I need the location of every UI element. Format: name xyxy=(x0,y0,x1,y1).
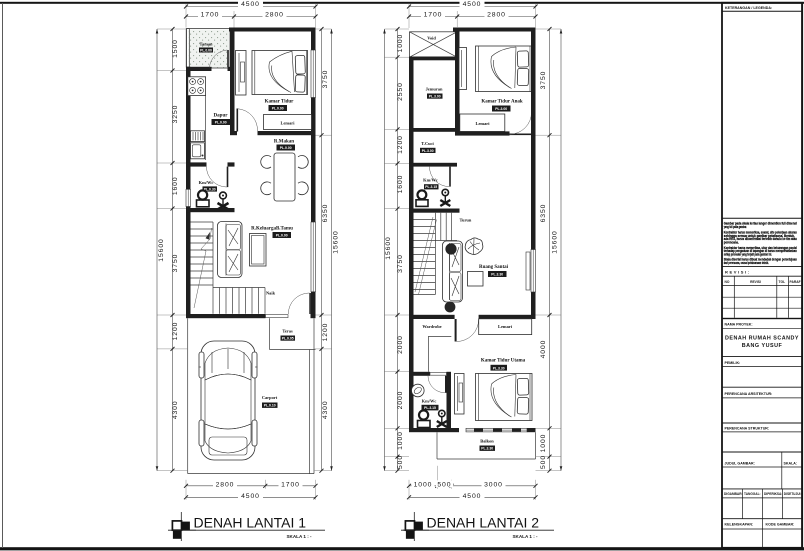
svg-text:Teras: Teras xyxy=(282,329,293,334)
svg-text:PL.0.00: PL.0.00 xyxy=(280,146,292,150)
svg-text:R.Makan: R.Makan xyxy=(274,140,294,145)
svg-text:PL.0.00: PL.0.00 xyxy=(272,107,284,111)
svg-text:SKALA 1 : -: SKALA 1 : - xyxy=(512,534,538,539)
svg-text:15600: 15600 xyxy=(332,230,339,253)
svg-text:DIPERIKSA:: DIPERIKSA: xyxy=(764,492,782,496)
svg-text:15600: 15600 xyxy=(552,230,559,253)
svg-text:500: 500 xyxy=(540,455,547,469)
svg-text:PL.3.30: PL.3.30 xyxy=(491,273,503,277)
svg-text:PL.0.05: PL.0.05 xyxy=(282,337,294,341)
svg-text:KODE GAMBAR:: KODE GAMBAR: xyxy=(766,523,795,527)
svg-text:2000: 2000 xyxy=(397,335,404,354)
svg-text:2800: 2800 xyxy=(265,12,284,19)
svg-text:PL.0.00: PL.0.00 xyxy=(200,48,212,52)
svg-text:1000: 1000 xyxy=(414,482,433,489)
svg-text:DENAH LANTAI 2: DENAH LANTAI 2 xyxy=(427,515,540,531)
svg-text:NAMA PROYEK:: NAMA PROYEK: xyxy=(725,323,753,327)
svg-text:Taman: Taman xyxy=(199,42,213,47)
svg-text:R.KeluargaB.Tamu: R.KeluargaB.Tamu xyxy=(251,227,293,232)
svg-text:Km/Wc: Km/Wc xyxy=(422,399,437,404)
svg-text:2550: 2550 xyxy=(397,82,404,101)
svg-text:Wardrobe: Wardrobe xyxy=(422,324,441,329)
svg-text:15600: 15600 xyxy=(385,236,392,259)
svg-text:BANG YUSUF: BANG YUSUF xyxy=(742,343,783,349)
svg-text:Km/Wc: Km/Wc xyxy=(423,178,438,183)
svg-text:1600: 1600 xyxy=(397,175,404,194)
svg-text:Kamar Tidur Anak: Kamar Tidur Anak xyxy=(481,100,523,105)
svg-text:PL.3.30: PL.3.30 xyxy=(481,447,493,451)
svg-text:Lemari: Lemari xyxy=(476,121,491,126)
svg-text:PL.3.15: PL.3.15 xyxy=(424,406,436,410)
svg-text:Kamar Tidur Utama: Kamar Tidur Utama xyxy=(481,359,526,364)
svg-text:1500: 1500 xyxy=(172,39,179,58)
svg-text:SKALA 1 : -: SKALA 1 : - xyxy=(286,534,312,539)
svg-text:PL.3.00: PL.3.00 xyxy=(422,149,434,153)
svg-text:PERENCANA ARSITEKTUR:: PERENCANA ARSITEKTUR: xyxy=(725,392,773,396)
svg-text:1200: 1200 xyxy=(397,135,404,154)
svg-text:DENAH RUMAH SCANDY: DENAH RUMAH SCANDY xyxy=(725,335,799,341)
svg-text:dari perencana, seusai pelaksa: dari perencana, seusai pelaksanaan tekni… xyxy=(724,261,769,265)
svg-text:PL.3.00: PL.3.00 xyxy=(495,107,507,111)
svg-text:PL.0.00: PL.0.00 xyxy=(276,234,288,238)
svg-text:6350: 6350 xyxy=(322,204,329,223)
svg-text:Dapur: Dapur xyxy=(214,114,229,119)
svg-text:3000: 3000 xyxy=(484,482,503,489)
svg-text:PL.3.30: PL.3.30 xyxy=(493,366,505,370)
svg-text:3750: 3750 xyxy=(540,71,547,90)
svg-text:4500: 4500 xyxy=(241,493,260,500)
svg-text:500: 500 xyxy=(397,455,404,469)
svg-text:Ruang Santai: Ruang Santai xyxy=(479,265,509,270)
svg-text:setiap persoalan yang terjadi: setiap persoalan yang terjadi pada gamba… xyxy=(724,252,772,256)
svg-text:PL.0.10: PL.0.10 xyxy=(264,404,276,408)
svg-text:6350: 6350 xyxy=(540,204,547,223)
svg-text:1700: 1700 xyxy=(201,12,220,19)
svg-text:PARAF: PARAF xyxy=(790,280,801,284)
svg-text:PL.0.00: PL.0.00 xyxy=(215,121,227,125)
svg-text:1000: 1000 xyxy=(397,431,404,450)
svg-text:4500: 4500 xyxy=(463,493,482,500)
svg-text:PERENCANA STRUKTUR:: PERENCANA STRUKTUR: xyxy=(725,426,770,430)
svg-text:15600: 15600 xyxy=(158,238,165,261)
svg-text:4300: 4300 xyxy=(322,400,329,419)
svg-text:perencana.: perencana. xyxy=(724,241,739,245)
svg-text:TANGGAL:: TANGGAL: xyxy=(744,492,761,496)
svg-text:Naik: Naik xyxy=(266,291,276,296)
svg-text:4000: 4000 xyxy=(540,340,547,359)
svg-text:Lemari: Lemari xyxy=(498,324,513,329)
svg-text:T.Cuci: T.Cuci xyxy=(421,141,434,146)
svg-text:DIGAMBAR:: DIGAMBAR: xyxy=(724,492,743,496)
svg-text:REVISI: REVISI xyxy=(750,280,761,284)
svg-text:REVISI:: REVISI: xyxy=(725,270,751,275)
svg-text:DISETUJUI:: DISETUJUI: xyxy=(784,492,802,496)
svg-text:PEMILIK:: PEMILIK: xyxy=(725,361,741,365)
svg-text:3750: 3750 xyxy=(172,254,179,273)
svg-text:Km/Wc: Km/Wc xyxy=(199,180,214,185)
svg-text:1000: 1000 xyxy=(397,34,404,53)
svg-text:1200: 1200 xyxy=(322,323,329,342)
svg-text:Carport: Carport xyxy=(262,395,278,400)
svg-text:SKALA:: SKALA: xyxy=(784,462,798,466)
svg-text:2800: 2800 xyxy=(216,482,235,489)
svg-text:PL.3.15: PL.3.15 xyxy=(425,185,437,189)
svg-text:1000: 1000 xyxy=(540,434,547,453)
svg-text:3250: 3250 xyxy=(172,105,179,124)
svg-text:JUDUL GAMBAR:: JUDUL GAMBAR: xyxy=(725,462,755,466)
svg-text:1700: 1700 xyxy=(281,482,300,489)
svg-text:Turun: Turun xyxy=(460,218,472,223)
svg-text:4500: 4500 xyxy=(463,1,482,8)
svg-text:3750: 3750 xyxy=(322,70,329,89)
svg-text:3750: 3750 xyxy=(397,254,404,273)
svg-text:1200: 1200 xyxy=(172,322,179,341)
svg-text:DENAH LANTAI 1: DENAH LANTAI 1 xyxy=(194,515,307,531)
svg-text:yang full pada gambar.: yang full pada gambar. xyxy=(724,225,747,229)
svg-text:1600: 1600 xyxy=(172,176,179,195)
svg-text:2000: 2000 xyxy=(397,391,404,410)
svg-text:Void: Void xyxy=(427,36,436,41)
svg-text:4500: 4500 xyxy=(241,1,260,8)
svg-text:Jemuran: Jemuran xyxy=(426,87,443,92)
svg-text:Lemari: Lemari xyxy=(281,120,296,125)
svg-text:Kamar Tidur: Kamar Tidur xyxy=(265,100,295,105)
svg-text:500: 500 xyxy=(437,482,451,489)
svg-text:KETERANGAN / LEGENDA:: KETERANGAN / LEGENDA: xyxy=(725,6,772,10)
svg-text:KELENGKAPAN:: KELENGKAPAN: xyxy=(725,523,754,527)
svg-text:1700: 1700 xyxy=(424,12,443,19)
svg-text:TGL: TGL xyxy=(779,280,786,284)
svg-text:Balkon: Balkon xyxy=(480,439,494,444)
svg-text:PL.3.00: PL.3.00 xyxy=(429,95,441,99)
svg-text:2800: 2800 xyxy=(487,12,506,19)
svg-text:NO: NO xyxy=(725,280,730,284)
svg-text:4300: 4300 xyxy=(172,400,179,419)
